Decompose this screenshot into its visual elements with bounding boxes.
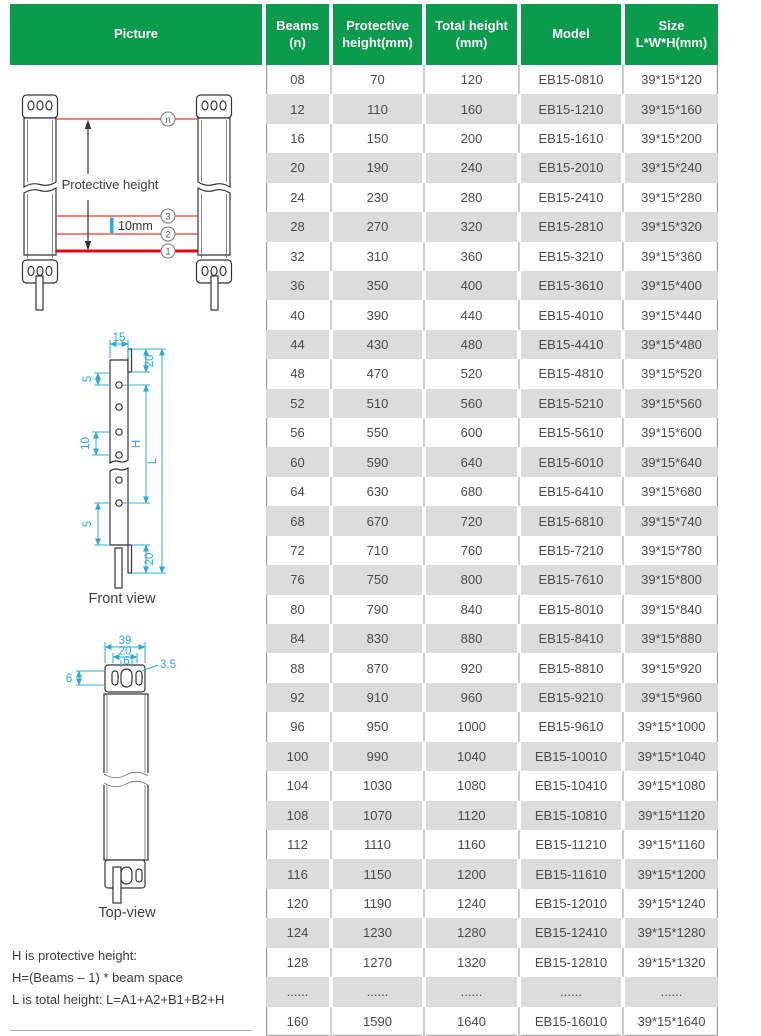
table-header: Picture Beams (n) Protective height(mm) …	[10, 4, 761, 65]
table-cell: 39*15*640	[625, 447, 718, 476]
top-view-title: Top-view	[98, 905, 156, 921]
table-cell: 1590	[333, 1007, 422, 1036]
table-cell: 120	[266, 889, 329, 918]
table-cell: 128	[266, 948, 329, 977]
table-cell: 39*15*960	[625, 683, 718, 712]
col-header-beams: Beams (n)	[266, 4, 329, 65]
table-cell: 1320	[426, 948, 517, 977]
col-header-picture: Picture	[10, 4, 262, 65]
table-cell: 160	[426, 94, 517, 123]
table-cell: 1640	[426, 1007, 517, 1036]
table-cell: EB15-11210	[521, 830, 621, 859]
table-cell: 39*15*240	[625, 153, 718, 182]
arrowhead-up	[85, 120, 91, 130]
table-cell: 60	[266, 447, 329, 476]
top-flange	[128, 349, 132, 372]
table-cell: 440	[426, 300, 517, 329]
table-cell: 1110	[333, 830, 422, 859]
table-row: 52510560EB15-521039*15*560	[266, 389, 718, 418]
table-row: ..............................	[266, 977, 718, 1006]
table-cell: 1040	[426, 742, 517, 771]
table-cell: 39*15*320	[625, 212, 718, 241]
table-cell: 64	[266, 477, 329, 506]
table-cell: EB15-10010	[521, 742, 621, 771]
table-cell: 124	[266, 918, 329, 947]
dim-5-bottom: 5	[82, 521, 94, 527]
table-cell: 350	[333, 271, 422, 300]
dim-15: 15	[113, 332, 126, 344]
sensor-tower-mirror	[197, 95, 232, 310]
table-cell: EB15-4410	[521, 330, 621, 359]
table-cell: 1150	[333, 859, 422, 888]
table-cell: 39*15*1200	[625, 859, 718, 888]
table-cell: EB15-12810	[521, 948, 621, 977]
dim-20-top: 20	[144, 355, 156, 368]
table-cell: 39*15*1240	[625, 889, 718, 918]
table-cell: 470	[333, 359, 422, 388]
table-body: n 3 2 1 Protective height 10mm	[10, 65, 761, 1036]
note-line: L is total height: L=A1+A2+B1+B2+H	[12, 989, 224, 1011]
table-row: 60590640EB15-601039*15*640	[266, 447, 718, 476]
table-cell: 840	[426, 595, 517, 624]
table-cell: 39*15*160	[625, 94, 718, 123]
col-header-size: Size L*W*H(mm)	[625, 4, 718, 65]
table-cell: 44	[266, 330, 329, 359]
table-row: 12812701320EB15-1281039*15*1320	[266, 948, 718, 977]
table-cell: EB15-6410	[521, 477, 621, 506]
col-header-total: Total height (mm)	[426, 4, 517, 65]
table-cell: 39*15*1160	[625, 830, 718, 859]
table-cell: EB15-3210	[521, 242, 621, 271]
table-cell: 39*15*200	[625, 124, 718, 153]
table-cell: 39*15*520	[625, 359, 718, 388]
table-cell: 710	[333, 536, 422, 565]
table-row: 10810701120EB15-1081039*15*1120	[266, 801, 718, 830]
table-cell: 160	[266, 1007, 329, 1036]
table-row: 12412301280EB15-1241039*15*1280	[266, 918, 718, 947]
table-cell: EB15-5210	[521, 389, 621, 418]
table-cell: 910	[333, 683, 422, 712]
table-cell: 116	[266, 859, 329, 888]
table-cell: 520	[426, 359, 517, 388]
table-cell: EB15-4810	[521, 359, 621, 388]
table-cell: 39*15*920	[625, 653, 718, 682]
table-cell: 1000	[426, 712, 517, 741]
table-cell: 72	[266, 536, 329, 565]
beam-label-1: 1	[165, 247, 170, 258]
table-row: 84830880EB15-841039*15*880	[266, 624, 718, 653]
dim-5-top: 5	[82, 376, 94, 382]
table-cell: 240	[426, 153, 517, 182]
beam-label-3: 3	[165, 212, 170, 223]
table-cell: 1280	[426, 918, 517, 947]
table-cell: 108	[266, 801, 329, 830]
table-cell: 39*15*560	[625, 389, 718, 418]
table-cell: 200	[426, 124, 517, 153]
picture-column: n 3 2 1 Protective height 10mm	[10, 65, 262, 1036]
table-cell: 112	[266, 830, 329, 859]
table-cell: 39*15*1280	[625, 918, 718, 947]
table-row: 969501000EB15-961039*15*1000	[266, 712, 718, 741]
table-row: 24230280EB15-241039*15*280	[266, 183, 718, 212]
dim-L: L	[147, 457, 159, 464]
table-cell: EB15-8410	[521, 624, 621, 653]
cable	[113, 867, 121, 903]
table-cell: 68	[266, 506, 329, 535]
table-cell: 104	[266, 771, 329, 800]
arrowhead-down	[85, 241, 91, 251]
table-cell: 1070	[333, 801, 422, 830]
table-cell: 280	[426, 183, 517, 212]
table-cell: 800	[426, 565, 517, 594]
table-cell: 270	[333, 212, 422, 241]
table-cell: 40	[266, 300, 329, 329]
cable	[115, 548, 122, 588]
table-row: 40390440EB15-401039*15*440	[266, 300, 718, 329]
table-cell: 39*15*1120	[625, 801, 718, 830]
table-cell: 960	[426, 683, 517, 712]
table-cell: 150	[333, 124, 422, 153]
table-cell: 39*15*600	[625, 418, 718, 447]
table-row: 11611501200EB15-1161039*15*1200	[266, 859, 718, 888]
table-cell: 310	[333, 242, 422, 271]
table-cell: 920	[426, 653, 517, 682]
table-row: 12110160EB15-121039*15*160	[266, 94, 718, 123]
table-cell: 39*15*1040	[625, 742, 718, 771]
table-row: 11211101160EB15-1121039*15*1160	[266, 830, 718, 859]
table-cell: 870	[333, 653, 422, 682]
table-row: 72710760EB15-721039*15*780	[266, 536, 718, 565]
table-cell: 600	[426, 418, 517, 447]
table-cell: 1200	[426, 859, 517, 888]
table-cell: 39*15*1000	[625, 712, 718, 741]
table-cell: EB15-4010	[521, 300, 621, 329]
table-cell: 560	[426, 389, 517, 418]
table-cell: EB15-11610	[521, 859, 621, 888]
table-cell: 28	[266, 212, 329, 241]
dim-side-6: 6	[66, 673, 72, 685]
table-cell: 39*15*1640	[625, 1007, 718, 1036]
table-cell: 1120	[426, 801, 517, 830]
table-cell: 39*15*360	[625, 242, 718, 271]
table-cell: EB15-12410	[521, 918, 621, 947]
table-cell: ......	[266, 977, 329, 1006]
table-cell: 52	[266, 389, 329, 418]
table-cell: 39*15*1080	[625, 771, 718, 800]
table-cell: 110	[333, 94, 422, 123]
table-cell: 32	[266, 242, 329, 271]
table-cell: ......	[333, 977, 422, 1006]
table-cell: 480	[426, 330, 517, 359]
table-cell: 36	[266, 271, 329, 300]
table-cell: 790	[333, 595, 422, 624]
table-cell: 190	[333, 153, 422, 182]
table-cell: 39*15*800	[625, 565, 718, 594]
table-cell: EB15-10810	[521, 801, 621, 830]
table-cell: 96	[266, 712, 329, 741]
table-cell: EB15-9210	[521, 683, 621, 712]
sensor-tower	[23, 95, 58, 310]
col-header-model: Model	[521, 4, 621, 65]
table-cell: 39*15*780	[625, 536, 718, 565]
table-row: 12011901240EB15-1201039*15*1240	[266, 889, 718, 918]
table-row: 92910960EB15-921039*15*960	[266, 683, 718, 712]
table-row: 68670720EB15-681039*15*740	[266, 506, 718, 535]
table-cell: 1080	[426, 771, 517, 800]
table-cell: 80	[266, 595, 329, 624]
table-cell: 39*15*440	[625, 300, 718, 329]
table-cell: 360	[426, 242, 517, 271]
front-view-drawing: 15 20 5 10 5 H L	[10, 330, 262, 620]
table-cell: EB15-6810	[521, 506, 621, 535]
table-cell: EB15-9610	[521, 712, 621, 741]
front-view-title: Front view	[89, 591, 156, 607]
table-cell: 39*15*880	[625, 624, 718, 653]
table-cell: 88	[266, 653, 329, 682]
table-cell: 750	[333, 565, 422, 594]
dim-3-5: 3.5	[160, 659, 176, 671]
table-cell: 990	[333, 742, 422, 771]
table-cell: 120	[426, 65, 517, 94]
table-cell: 680	[426, 477, 517, 506]
note-line: H=(Beams – 1) * beam space	[12, 967, 224, 989]
table-cell: 320	[426, 212, 517, 241]
table-row: 88870920EB15-881039*15*920	[266, 653, 718, 682]
table-cell: 84	[266, 624, 329, 653]
table-cell: 48	[266, 359, 329, 388]
table-cell: 1030	[333, 771, 422, 800]
table-row: 56550600EB15-561039*15*600	[266, 418, 718, 447]
table-row: 76750800EB15-761039*15*800	[266, 565, 718, 594]
table-cell: 100	[266, 742, 329, 771]
table-cell: 1240	[426, 889, 517, 918]
dim-20-bottom: 20	[144, 553, 156, 566]
bottom-divider	[10, 1030, 252, 1031]
note-line: H is protective height:	[12, 945, 224, 967]
table-cell: 1160	[426, 830, 517, 859]
table-cell: 390	[333, 300, 422, 329]
table-cell: 950	[333, 712, 422, 741]
protective-height-label: Protective height	[62, 177, 159, 192]
table-row: 1009901040EB15-1001039*15*1040	[266, 742, 718, 771]
table-row: 0870120EB15-081039*15*120	[266, 65, 718, 94]
table-cell: EB15-8010	[521, 595, 621, 624]
table-cell: 670	[333, 506, 422, 535]
table-cell: 400	[426, 271, 517, 300]
table-cell: ......	[521, 977, 621, 1006]
table-cell: 510	[333, 389, 422, 418]
table-cell: 39*15*840	[625, 595, 718, 624]
table-cell: 550	[333, 418, 422, 447]
table-cell: EB15-5610	[521, 418, 621, 447]
table-cell: 39*15*400	[625, 271, 718, 300]
table-row: 28270320EB15-281039*15*320	[266, 212, 718, 241]
table-row: 44430480EB15-441039*15*480	[266, 330, 718, 359]
table-cell: EB15-2010	[521, 153, 621, 182]
table-cell: 830	[333, 624, 422, 653]
beam-space-bar	[110, 218, 114, 234]
table-cell: 720	[426, 506, 517, 535]
table-cell: 430	[333, 330, 422, 359]
table-cell: 24	[266, 183, 329, 212]
table-cell: 92	[266, 683, 329, 712]
table-cell: 640	[426, 447, 517, 476]
table-cell: 39*15*480	[625, 330, 718, 359]
table-cell: 56	[266, 418, 329, 447]
table-cell: EB15-10410	[521, 771, 621, 800]
table-cell: EB15-2410	[521, 183, 621, 212]
table-cell: 1190	[333, 889, 422, 918]
table-row: 16015901640EB15-1601039*15*1640	[266, 1007, 718, 1036]
table-cell: 1230	[333, 918, 422, 947]
beam-label-2: 2	[165, 230, 170, 241]
beams-schematic: n 3 2 1 Protective height 10mm	[10, 90, 262, 318]
table-cell: 590	[333, 447, 422, 476]
table-cell: EB15-1210	[521, 94, 621, 123]
col-header-protective: Protective height(mm)	[333, 4, 422, 65]
data-rows: 0870120EB15-081039*15*12012110160EB15-12…	[266, 65, 718, 1036]
table-cell: 08	[266, 65, 329, 94]
dim-H: H	[131, 440, 143, 448]
table-cell: EB15-3610	[521, 271, 621, 300]
table-cell: 630	[333, 477, 422, 506]
table-cell: 16	[266, 124, 329, 153]
table-cell: 12	[266, 94, 329, 123]
table-row: 48470520EB15-481039*15*520	[266, 359, 718, 388]
table-row: 10410301080EB15-1041039*15*1080	[266, 771, 718, 800]
table-row: 16150200EB15-161039*15*200	[266, 124, 718, 153]
table-cell: EB15-12010	[521, 889, 621, 918]
table-cell: EB15-1610	[521, 124, 621, 153]
top-view-drawing: 39 20 6 3.5 6 Top-view	[10, 627, 262, 927]
table-row: 32310360EB15-321039*15*360	[266, 242, 718, 271]
table-cell: 1270	[333, 948, 422, 977]
table-cell: 20	[266, 153, 329, 182]
table-cell: 39*15*1320	[625, 948, 718, 977]
table-cell: 70	[333, 65, 422, 94]
dim-10: 10	[80, 437, 92, 450]
notes: H is protective height: H=(Beams – 1) * …	[12, 945, 224, 1011]
spec-sheet: Picture Beams (n) Protective height(mm) …	[0, 0, 761, 1036]
table-cell: EB15-8810	[521, 653, 621, 682]
table-row: 80790840EB15-801039*15*840	[266, 595, 718, 624]
table-cell: 39*15*740	[625, 506, 718, 535]
table-cell: 760	[426, 536, 517, 565]
table-cell: 39*15*280	[625, 183, 718, 212]
table-cell: 39*15*120	[625, 65, 718, 94]
table-cell: 39*15*680	[625, 477, 718, 506]
table-cell: EB15-7610	[521, 565, 621, 594]
table-cell: 76	[266, 565, 329, 594]
table-cell: EB15-16010	[521, 1007, 621, 1036]
table-row: 20190240EB15-201039*15*240	[266, 153, 718, 182]
bottom-flange	[128, 545, 132, 573]
table-cell: EB15-0810	[521, 65, 621, 94]
table-cell: ......	[625, 977, 718, 1006]
bar-upper	[110, 360, 128, 463]
table-row: 36350400EB15-361039*15*400	[266, 271, 718, 300]
table-cell: 230	[333, 183, 422, 212]
table-cell: EB15-2810	[521, 212, 621, 241]
table-cell: ......	[426, 977, 517, 1006]
table-cell: EB15-7210	[521, 536, 621, 565]
table-row: 64630680EB15-641039*15*680	[266, 477, 718, 506]
beam-label-n: n	[165, 115, 170, 126]
table-cell: EB15-6010	[521, 447, 621, 476]
table-cell: 880	[426, 624, 517, 653]
dim-hole-6: 6	[123, 656, 129, 668]
beam-space-label: 10mm	[118, 219, 153, 233]
